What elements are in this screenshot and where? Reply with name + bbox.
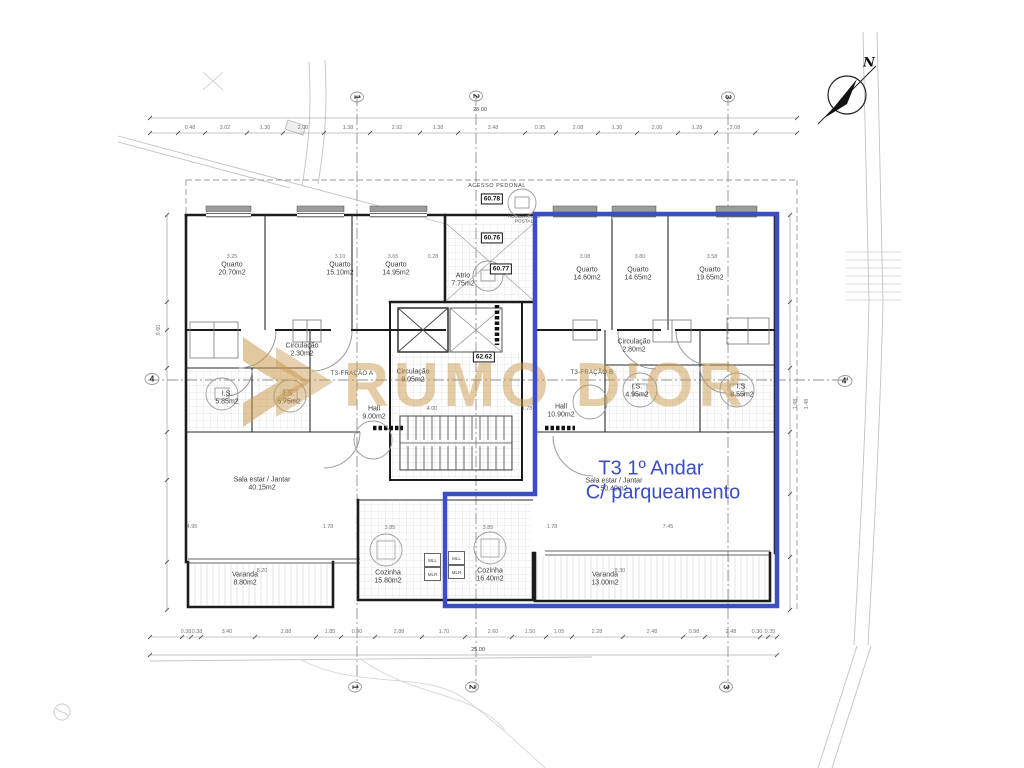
highlight-title-line1: T3 1º Andar [598,458,703,481]
floorplan-page: RUMO D'OR Quarto20.70m2 Quarto15.10m2 Qu… [0,0,1024,768]
highlight-title-line2: C/ parqueamento [586,482,741,505]
highlight-overlay [0,0,1024,768]
highlight-outline [445,214,777,606]
